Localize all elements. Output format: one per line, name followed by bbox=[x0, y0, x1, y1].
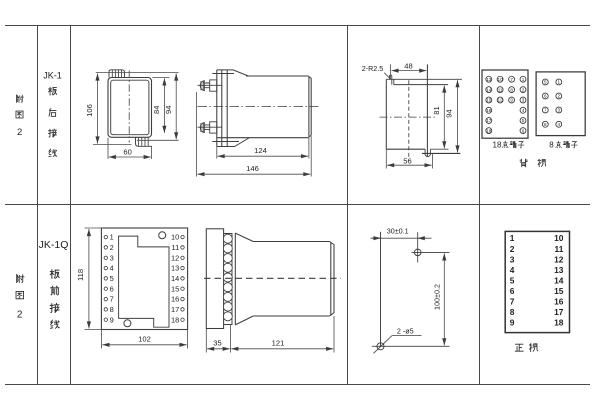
svg-text:17: 17 bbox=[171, 305, 179, 314]
svg-text:81: 81 bbox=[432, 106, 441, 114]
svg-text:11: 11 bbox=[555, 244, 564, 254]
svg-text:2-R2.5: 2-R2.5 bbox=[362, 64, 384, 73]
svg-text:5: 5 bbox=[110, 274, 114, 283]
svg-text:5: 5 bbox=[522, 118, 525, 123]
svg-text:9: 9 bbox=[510, 318, 515, 328]
svg-text:60: 60 bbox=[123, 148, 131, 157]
svg-text:10: 10 bbox=[498, 77, 504, 82]
svg-text:118: 118 bbox=[76, 269, 85, 281]
svg-text:94: 94 bbox=[445, 109, 454, 117]
svg-text:4: 4 bbox=[110, 264, 114, 273]
svg-text:8: 8 bbox=[110, 305, 114, 314]
svg-text:8: 8 bbox=[510, 87, 513, 92]
svg-text:121: 121 bbox=[272, 339, 285, 348]
svg-text:17: 17 bbox=[554, 307, 564, 317]
svg-text:15: 15 bbox=[486, 98, 492, 103]
svg-text:84: 84 bbox=[152, 106, 161, 114]
svg-text:3: 3 bbox=[558, 108, 561, 113]
svg-text:8: 8 bbox=[549, 141, 554, 150]
svg-text:7: 7 bbox=[544, 108, 547, 113]
svg-text:6: 6 bbox=[522, 128, 525, 133]
svg-text:12: 12 bbox=[498, 98, 504, 103]
svg-text:8: 8 bbox=[544, 122, 547, 127]
svg-text:7: 7 bbox=[110, 295, 114, 304]
svg-text:124: 124 bbox=[254, 146, 267, 155]
svg-text:1: 1 bbox=[110, 233, 114, 242]
svg-text:15: 15 bbox=[554, 286, 564, 296]
svg-text:2: 2 bbox=[17, 310, 23, 321]
svg-text:18: 18 bbox=[171, 315, 179, 324]
svg-text:48: 48 bbox=[404, 62, 412, 71]
svg-text:16: 16 bbox=[486, 108, 492, 113]
svg-text:2: 2 bbox=[522, 87, 525, 92]
svg-text:6: 6 bbox=[510, 286, 515, 296]
svg-text:2 -ø5: 2 -ø5 bbox=[397, 327, 414, 336]
svg-text:2: 2 bbox=[510, 244, 515, 254]
svg-text:5: 5 bbox=[510, 275, 515, 285]
svg-text:11: 11 bbox=[172, 243, 180, 252]
svg-text:14: 14 bbox=[554, 275, 564, 285]
svg-text:18: 18 bbox=[486, 128, 492, 133]
svg-text:9: 9 bbox=[110, 315, 114, 324]
svg-text:4: 4 bbox=[510, 265, 515, 275]
svg-text:10: 10 bbox=[554, 233, 564, 243]
svg-text:JK-1: JK-1 bbox=[43, 71, 62, 81]
svg-text:56: 56 bbox=[403, 157, 411, 166]
svg-text:3: 3 bbox=[522, 98, 525, 103]
svg-text:14: 14 bbox=[486, 87, 492, 92]
svg-text:3: 3 bbox=[510, 254, 515, 264]
svg-text:4: 4 bbox=[558, 122, 561, 127]
svg-text:10: 10 bbox=[171, 233, 179, 242]
svg-text:100±0.2: 100±0.2 bbox=[432, 284, 441, 310]
svg-text:146: 146 bbox=[246, 164, 259, 173]
svg-text:16: 16 bbox=[171, 295, 179, 304]
svg-text:13: 13 bbox=[554, 265, 564, 275]
svg-text:7: 7 bbox=[510, 297, 515, 307]
svg-text:15: 15 bbox=[171, 284, 179, 293]
svg-text:8: 8 bbox=[510, 307, 515, 317]
svg-text:30±0.1: 30±0.1 bbox=[387, 226, 409, 235]
svg-text:94: 94 bbox=[164, 106, 173, 114]
svg-text:1: 1 bbox=[522, 77, 525, 82]
svg-text:13: 13 bbox=[486, 77, 492, 82]
svg-text:6: 6 bbox=[544, 94, 547, 99]
svg-text:5: 5 bbox=[544, 80, 547, 85]
svg-text:1: 1 bbox=[558, 80, 561, 85]
svg-text:17: 17 bbox=[486, 118, 492, 123]
svg-text:106: 106 bbox=[85, 104, 94, 117]
svg-text:35: 35 bbox=[213, 339, 221, 348]
svg-text:9: 9 bbox=[510, 98, 513, 103]
svg-text:JK-1Q: JK-1Q bbox=[39, 239, 69, 251]
svg-text:13: 13 bbox=[171, 264, 179, 273]
svg-text:7: 7 bbox=[510, 77, 513, 82]
svg-text:2: 2 bbox=[110, 243, 114, 252]
svg-text:11: 11 bbox=[498, 87, 503, 92]
svg-text:18: 18 bbox=[493, 141, 502, 150]
svg-text:102: 102 bbox=[138, 335, 151, 344]
svg-text:3: 3 bbox=[110, 253, 114, 262]
svg-text:16: 16 bbox=[554, 297, 564, 307]
svg-text:18: 18 bbox=[554, 318, 564, 328]
svg-text:12: 12 bbox=[554, 254, 564, 264]
svg-text:4: 4 bbox=[522, 108, 525, 113]
svg-text:6: 6 bbox=[110, 284, 114, 293]
svg-text:2: 2 bbox=[558, 94, 561, 99]
svg-text:14: 14 bbox=[171, 274, 179, 283]
svg-text:1: 1 bbox=[510, 233, 515, 243]
svg-text:2: 2 bbox=[17, 127, 22, 138]
svg-text:12: 12 bbox=[171, 253, 179, 262]
